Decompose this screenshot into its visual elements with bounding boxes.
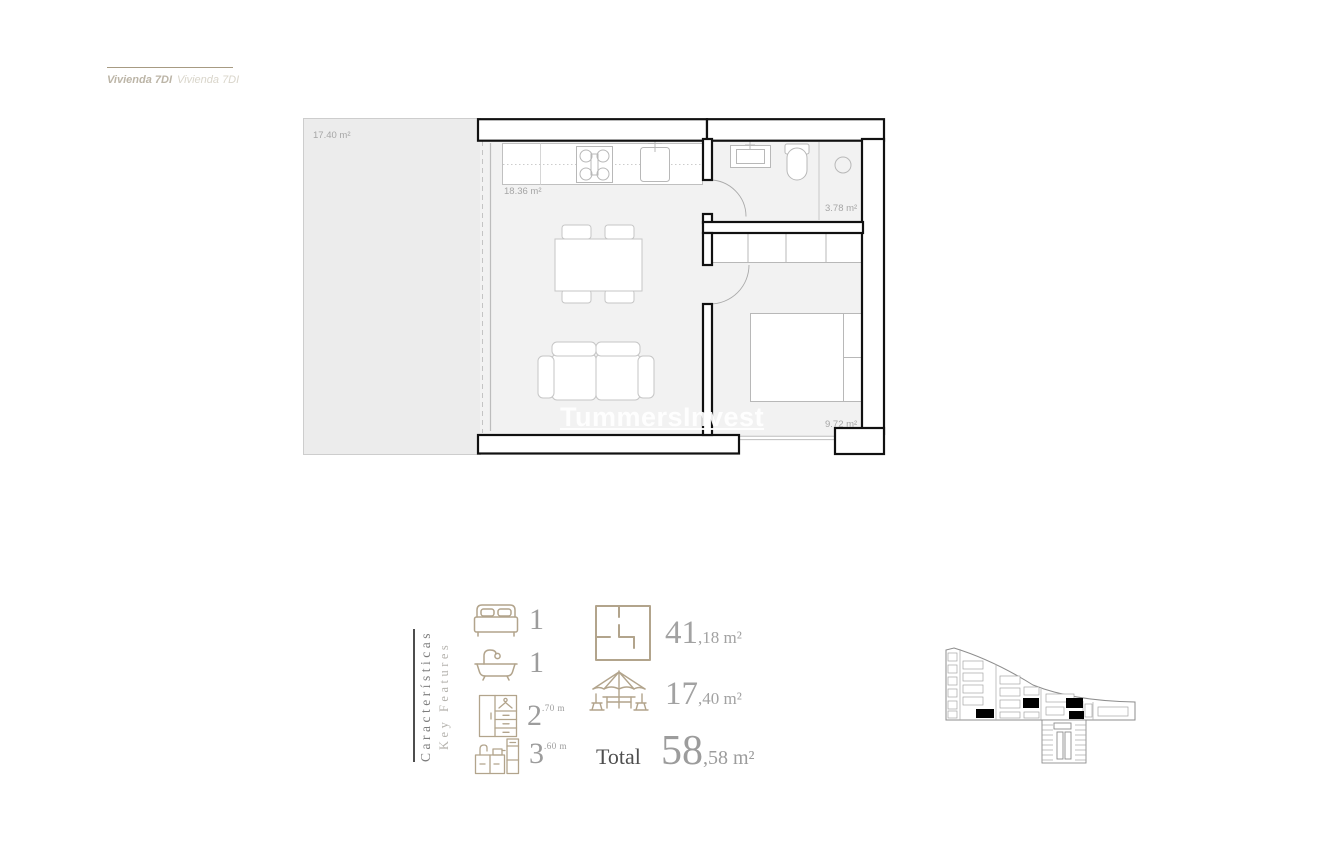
page: Vivienda 7DIVivienda 7DI [0, 0, 1320, 859]
terrace-icon [586, 668, 652, 720]
kitchen-length-sup: .60 m [544, 741, 567, 751]
wardrobe-length-sup: .70 m [542, 703, 565, 713]
feature-wardrobe: 2.70 m [478, 694, 565, 738]
feature-kitchen: 3.60 m [474, 733, 567, 775]
terrace-area-label: 17.40 m² [313, 130, 351, 141]
built-area-main: 41 [665, 615, 698, 651]
floorplan-icon [594, 604, 652, 662]
terrace-area-main: 17 [665, 676, 698, 712]
total-row: Total 58,58 m² [596, 727, 755, 775]
wardrobe-length: 2.70 m [527, 701, 565, 731]
built-area-row: 41,18 m² [594, 604, 742, 662]
terrace-area-row: 17,40 m² [586, 668, 742, 720]
bedroom-window [739, 436, 835, 439]
living-area-label: 18.36 m² [504, 186, 542, 197]
key-plan-drawing [938, 645, 1138, 767]
bed-icon [472, 601, 520, 639]
total-main: 58 [661, 728, 703, 774]
feature-bathrooms: 1 [472, 644, 544, 682]
total-label: Total [596, 744, 661, 770]
stair-tower [1042, 720, 1086, 763]
bathrooms-count: 1 [529, 648, 544, 678]
wardrobe-length-value: 2 [527, 699, 542, 732]
terrace-region [304, 119, 481, 455]
bedroom-area-label: 9.72 m² [825, 419, 857, 430]
title-secondary: Vivienda 7DI [177, 74, 239, 86]
stove [577, 147, 613, 183]
sofa [538, 342, 654, 400]
kitchen-icon [474, 733, 520, 775]
built-area-value: 41,18 m² [665, 615, 742, 652]
title-primary: Vivienda 7DI [107, 74, 172, 86]
wardrobe [713, 234, 863, 263]
features-heading-es: Características [418, 626, 434, 766]
bathroom-area-label: 3.78 m² [825, 203, 857, 214]
terrace-area-rest: ,40 m² [698, 689, 742, 708]
bath-icon [472, 644, 520, 682]
total-rest: ,58 m² [703, 747, 755, 769]
kitchen-length: 3.60 m [529, 739, 567, 769]
features-rule [413, 629, 415, 762]
wardrobe-icon [478, 694, 518, 738]
terrace-area-value: 17,40 m² [665, 676, 742, 713]
features-heading-en: Key Features [437, 626, 452, 766]
watermark: TummersInvest [560, 402, 760, 433]
kitchen-length-value: 3 [529, 737, 544, 770]
toilet [785, 144, 809, 180]
total-value: 58,58 m² [661, 727, 755, 775]
building-key-plan [938, 645, 1138, 767]
bedrooms-count: 1 [529, 605, 544, 635]
page-title: Vivienda 7DIVivienda 7DI [107, 74, 239, 86]
built-area-rest: ,18 m² [698, 628, 742, 647]
bed [751, 314, 863, 402]
feature-bedrooms: 1 [472, 601, 544, 639]
header-accent-line [107, 67, 233, 68]
